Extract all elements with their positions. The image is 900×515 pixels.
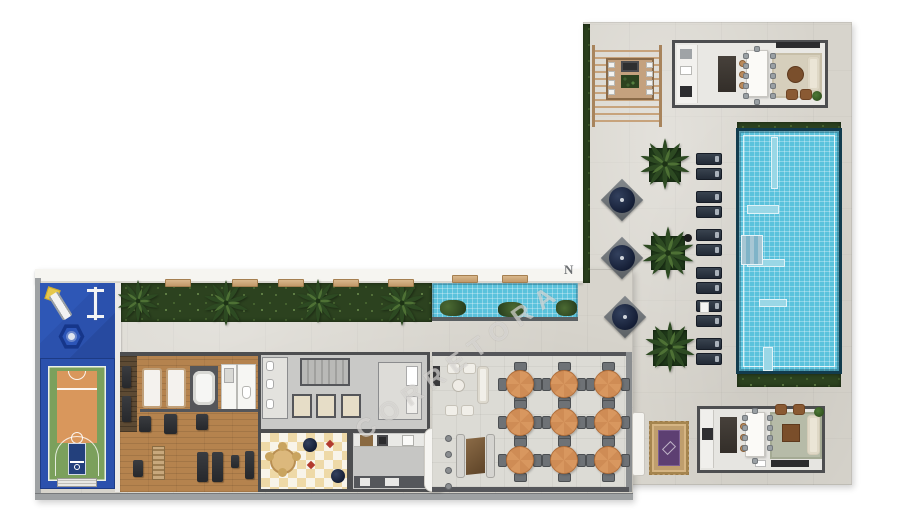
sofa [807, 56, 820, 91]
counter-appliance [385, 478, 399, 486]
water-planter [556, 300, 577, 316]
tv-panel [776, 42, 820, 48]
wc-fixture [406, 396, 418, 414]
bbq-herbs [621, 75, 639, 88]
brand-logo: N [564, 262, 573, 278]
cooktop [377, 435, 388, 446]
lounge-armchair [463, 363, 476, 374]
kitchen-sink [680, 66, 692, 75]
shower-tray [224, 368, 234, 383]
bean-bag [331, 469, 345, 483]
square-coffee-table [782, 424, 800, 442]
swing-bar [87, 315, 104, 318]
wc-fixture [266, 361, 274, 371]
lounge-armchair [461, 405, 474, 416]
lounge-armchair [445, 405, 458, 416]
wc-fixture [266, 379, 274, 389]
bottom-perimeter-wall [35, 493, 633, 500]
hedge-band [120, 283, 432, 322]
backboard [70, 461, 84, 463]
hoop [74, 464, 80, 470]
tv-console [771, 460, 809, 467]
stairs [300, 358, 350, 386]
top-perimeter-wall [35, 269, 583, 283]
bbq-grill [621, 61, 639, 72]
gym-feature-wall [120, 356, 137, 432]
booth-table [466, 437, 485, 475]
sofa [807, 415, 820, 455]
terrace-east-wall [626, 352, 632, 492]
wc-fixture [266, 399, 274, 409]
booth-sofa [456, 434, 465, 478]
party-dining-table [745, 412, 765, 457]
terrace-north-wall [432, 352, 629, 356]
jacuzzi-tub [193, 371, 215, 405]
massage-bed [166, 368, 186, 408]
kids-chair [265, 452, 274, 461]
court-line [57, 388, 97, 390]
booth-sofa [486, 434, 495, 478]
console [433, 366, 440, 386]
plant-pot [814, 407, 824, 417]
kids-chair [292, 452, 301, 461]
lounge-coffee-table [452, 379, 465, 392]
water-planter [498, 302, 524, 317]
water-planter [440, 300, 466, 316]
pool-hedge-south [737, 374, 841, 387]
counter-wood-block [360, 435, 373, 446]
bean-bag [303, 438, 317, 452]
armchair [786, 89, 798, 100]
armchair [800, 89, 812, 100]
outdoor-bar-counter [632, 412, 645, 476]
counter-appliance [360, 478, 370, 486]
hedge-strip-west [583, 24, 590, 283]
lounge-armchair [447, 363, 460, 374]
party-island [720, 417, 737, 453]
shower-partition [236, 364, 238, 410]
party-cabinet-dark [702, 428, 713, 440]
water-feature-edge [432, 317, 578, 321]
media-box [755, 460, 766, 467]
terrace-south-wall [432, 487, 629, 492]
bleachers [57, 478, 97, 487]
floor-plan: CORRETORA N [0, 0, 900, 515]
key [68, 443, 86, 475]
kitchen-island [718, 56, 736, 92]
swing-bar [87, 289, 104, 292]
wc-fixture [406, 366, 418, 386]
armchair [775, 404, 787, 415]
spa-partition-wall [140, 409, 258, 412]
toilet [242, 386, 251, 399]
kids-chair [278, 442, 287, 451]
plant-pot [812, 91, 822, 101]
gym-ladder-rack [152, 446, 165, 480]
armchair [793, 404, 805, 415]
kitchen-appliance [680, 49, 692, 59]
massage-bed [142, 368, 162, 408]
lounge-sofa [477, 366, 489, 404]
main-pool [736, 128, 842, 374]
sink [402, 435, 414, 446]
coffee-table-round [787, 66, 804, 83]
dining-table-long [746, 50, 768, 97]
climbing-dome-hub [68, 333, 75, 340]
pool-steps [741, 235, 763, 265]
kitchen-oven [680, 86, 692, 97]
kids-chair [278, 468, 287, 477]
